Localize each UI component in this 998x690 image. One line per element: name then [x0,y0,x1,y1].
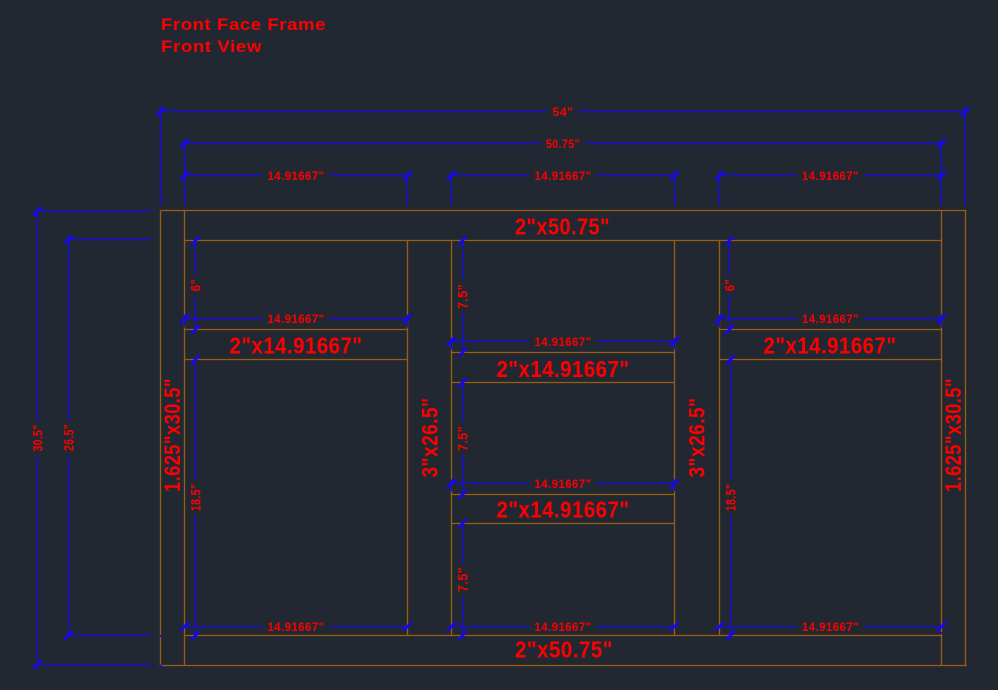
svg-text:7.5": 7.5" [454,284,470,309]
svg-text:14.91667": 14.91667" [535,477,592,491]
svg-text:2"x50.75": 2"x50.75" [515,637,613,663]
svg-text:7.5": 7.5" [454,567,470,592]
svg-text:14.91667": 14.91667" [268,620,325,634]
svg-text:2"x14.91667": 2"x14.91667" [497,497,630,523]
svg-text:14.91667": 14.91667" [268,169,325,183]
svg-text:2"x14.91667": 2"x14.91667" [230,332,363,358]
svg-text:14.91667": 14.91667" [802,620,859,634]
svg-text:3"x26.5": 3"x26.5" [685,398,710,478]
svg-text:2"x50.75": 2"x50.75" [515,213,610,239]
svg-text:3"x26.5": 3"x26.5" [418,398,443,478]
svg-text:14.91667": 14.91667" [802,312,859,326]
svg-text:2"x14.91667": 2"x14.91667" [497,356,630,382]
svg-text:14.91667": 14.91667" [802,169,859,183]
svg-text:18.5": 18.5" [722,484,738,512]
svg-text:Front Face Frame: Front Face Frame [161,15,326,34]
svg-text:50.75": 50.75" [546,137,580,151]
svg-text:1.625"x30.5": 1.625"x30.5" [160,378,185,492]
svg-text:1.625"x30.5": 1.625"x30.5" [941,378,966,492]
svg-text:14.91667": 14.91667" [268,312,325,326]
svg-text:14.91667": 14.91667" [535,169,592,183]
svg-text:54": 54" [553,105,574,119]
svg-text:2"x14.91667": 2"x14.91667" [764,332,897,358]
svg-text:26.5": 26.5" [60,424,76,451]
svg-text:14.91667": 14.91667" [535,335,592,349]
svg-text:6": 6" [721,279,737,292]
svg-text:18.5": 18.5" [187,484,203,512]
svg-text:30.5": 30.5" [29,425,45,452]
svg-text:6": 6" [187,279,203,292]
svg-text:14.91667": 14.91667" [535,620,592,634]
svg-text:Front View: Front View [161,37,262,56]
svg-text:7.5": 7.5" [454,426,470,451]
